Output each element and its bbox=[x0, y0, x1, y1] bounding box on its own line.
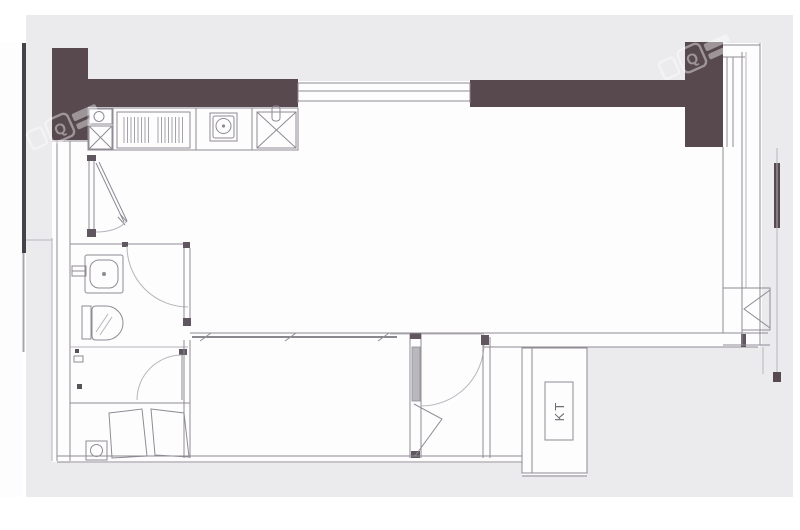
wall-left-edge-line bbox=[22, 43, 26, 253]
left-exterior-strip bbox=[0, 43, 22, 497]
right-wall-end bbox=[773, 372, 781, 382]
bottom-rooms-floor bbox=[70, 333, 533, 463]
floor-plan-image: KT bbox=[0, 0, 800, 530]
floor-plan-drawing: KT bbox=[0, 0, 800, 530]
wall-top-right-bar bbox=[470, 80, 685, 107]
duct-label: KT bbox=[552, 401, 567, 422]
wall-left-edge-line-light bbox=[23, 253, 25, 352]
wall-top-left-bar bbox=[88, 79, 298, 107]
apartment-floor-area bbox=[0, 43, 762, 497]
